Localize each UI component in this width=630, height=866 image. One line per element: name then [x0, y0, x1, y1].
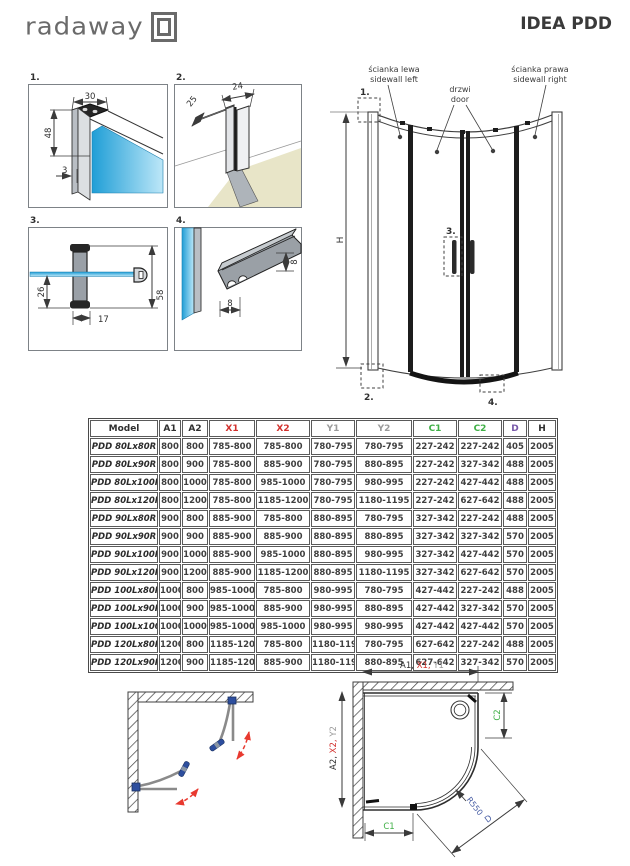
- dim-c1-label: C1: [383, 822, 394, 832]
- value-cell: 885-900: [256, 654, 310, 671]
- value-cell: 980-995: [311, 618, 355, 635]
- value-cell: 427-442: [458, 474, 502, 491]
- value-cell: 785-800: [209, 438, 255, 455]
- value-cell: 1200: [182, 564, 208, 581]
- dim-c2: C2: [485, 693, 512, 738]
- wall-top: [353, 682, 513, 690]
- logo-text: radaway: [25, 15, 144, 39]
- value-cell: 488: [503, 582, 527, 599]
- column-header: H: [528, 420, 556, 437]
- detail-3-drawing: 3. 26 17 58: [28, 213, 168, 351]
- table-row: PDD 100Lx90R1000900985-1000885-900980-99…: [90, 600, 556, 617]
- value-cell: 627-642: [458, 492, 502, 509]
- model-cell: PDD 120Lx80R: [90, 636, 158, 653]
- value-cell: 1000: [159, 618, 181, 635]
- marker-3: 3.: [446, 227, 456, 237]
- value-cell: 1200: [159, 654, 181, 671]
- value-cell: 880-895: [311, 510, 355, 527]
- value-cell: 405: [503, 438, 527, 455]
- glass-panel: [30, 272, 134, 277]
- value-cell: 900: [159, 528, 181, 545]
- diagonal-label: D: [483, 813, 495, 825]
- marker-1: 1.: [360, 88, 370, 98]
- dim-24: 24: [232, 81, 244, 93]
- door-handle-right: [470, 240, 475, 274]
- door-bottom-left: [132, 761, 198, 804]
- model-cell: PDD 100Lx80R: [90, 582, 158, 599]
- value-cell: 1200: [182, 492, 208, 509]
- label-sidewall-right-en: sidewall right: [513, 75, 567, 84]
- value-cell: 2005: [528, 510, 556, 527]
- table-header-row: ModelA1A2X1X2Y1Y2C1C2DH: [90, 420, 556, 437]
- value-cell: 980-995: [311, 600, 355, 617]
- value-cell: 780-795: [356, 510, 412, 527]
- catalog-page: radaway IDEA PDD 1. 30 48 3: [0, 0, 630, 866]
- value-cell: 985-1000: [209, 618, 255, 635]
- value-cell: 570: [503, 600, 527, 617]
- value-cell: 1000: [182, 474, 208, 491]
- radaway-logo: radaway: [25, 12, 177, 42]
- value-cell: 785-800: [256, 510, 310, 527]
- height-dimension: H: [336, 114, 362, 368]
- model-cell: PDD 100Lx90R: [90, 600, 158, 617]
- pivot-block: [132, 783, 140, 791]
- column-header: Y1: [311, 420, 355, 437]
- dim-48: 48: [44, 128, 54, 139]
- value-cell: 900: [159, 564, 181, 581]
- column-header: C1: [413, 420, 457, 437]
- value-cell: 885-900: [209, 564, 255, 581]
- value-cell: 327-342: [413, 546, 457, 563]
- detail-1-drawing: 1. 30 48 3: [28, 70, 168, 208]
- value-cell: 780-795: [356, 438, 412, 455]
- value-cell: 1000: [182, 546, 208, 563]
- pivot-block: [228, 697, 236, 704]
- value-cell: 2005: [528, 564, 556, 581]
- value-cell: 1000: [182, 618, 208, 635]
- value-cell: 780-795: [311, 474, 355, 491]
- value-cell: 227-242: [458, 636, 502, 653]
- detail-4-drawing: 4. 8 8: [174, 213, 302, 351]
- model-cell: PDD 90Lx100R: [90, 546, 158, 563]
- value-cell: 985-1000: [256, 546, 310, 563]
- enclosure-front: [330, 112, 562, 382]
- value-cell: 2005: [528, 636, 556, 653]
- value-cell: 885-900: [256, 456, 310, 473]
- detail-1-label: 1.: [30, 73, 40, 83]
- value-cell: 785-800: [256, 438, 310, 455]
- table-row: PDD 90Lx90R900900885-900885-900880-89588…: [90, 528, 556, 545]
- value-cell: 227-242: [413, 438, 457, 455]
- value-cell: 2005: [528, 618, 556, 635]
- value-cell: 327-342: [413, 528, 457, 545]
- value-cell: 427-442: [413, 600, 457, 617]
- logo-square-icon: [151, 12, 177, 42]
- label-door-pl: drzwi: [449, 85, 470, 94]
- value-cell: 570: [503, 546, 527, 563]
- value-cell: 1000: [159, 582, 181, 599]
- value-cell: 2005: [528, 546, 556, 563]
- value-cell: 900: [182, 600, 208, 617]
- value-cell: 327-342: [458, 600, 502, 617]
- value-cell: 1185-1200: [256, 492, 310, 509]
- value-cell: 785-800: [209, 492, 255, 509]
- door-handle-left: [452, 240, 457, 274]
- label-door-en: door: [451, 95, 470, 104]
- detail-2-label: 2.: [176, 73, 186, 83]
- value-cell: 327-342: [413, 510, 457, 527]
- value-cell: 1200: [159, 636, 181, 653]
- value-cell: 1180-1195: [356, 492, 412, 509]
- value-cell: 227-242: [413, 456, 457, 473]
- table-row: PDD 80Lx100R8001000785-800985-1000780-79…: [90, 474, 556, 491]
- value-cell: 885-900: [209, 546, 255, 563]
- value-cell: 800: [159, 456, 181, 473]
- value-cell: 980-995: [356, 618, 412, 635]
- model-cell: PDD 80Lx90R: [90, 456, 158, 473]
- value-cell: 900: [182, 456, 208, 473]
- dim-top-y1: Y1: [432, 661, 444, 671]
- value-cell: 800: [159, 474, 181, 491]
- value-cell: 488: [503, 636, 527, 653]
- value-cell: 785-800: [209, 456, 255, 473]
- value-cell: 327-342: [413, 564, 457, 581]
- value-cell: 800: [182, 510, 208, 527]
- value-cell: 2005: [528, 600, 556, 617]
- dim-30: 30: [85, 92, 96, 102]
- wall-left: [353, 682, 363, 838]
- value-cell: 885-900: [256, 600, 310, 617]
- value-cell: 227-242: [413, 474, 457, 491]
- value-cell: 985-1000: [256, 618, 310, 635]
- dim-radius: R550: [456, 790, 485, 817]
- value-cell: 427-442: [458, 546, 502, 563]
- detail-markers: 1. 2. 3. 4.: [358, 88, 504, 408]
- page-title: IDEA PDD: [520, 14, 612, 34]
- value-cell: 1185-1200: [209, 636, 255, 653]
- value-cell: 785-800: [256, 582, 310, 599]
- value-cell: 570: [503, 528, 527, 545]
- label-sidewall-left-en: sidewall left: [370, 75, 418, 84]
- value-cell: 780-795: [311, 492, 355, 509]
- marker-4: 4.: [488, 398, 498, 408]
- dim-left-x2: X2,: [329, 737, 339, 754]
- value-cell: 2005: [528, 582, 556, 599]
- front-view-drawing: ścianka lewa sidewall left drzwi door śc…: [330, 58, 630, 418]
- dim-c2-label: C2: [493, 709, 503, 720]
- dim-58: 58: [156, 290, 166, 301]
- value-cell: 980-995: [356, 546, 412, 563]
- label-sidewall-left-pl: ścianka lewa: [368, 64, 419, 74]
- value-cell: 885-900: [209, 510, 255, 527]
- door-top-right: [209, 697, 249, 759]
- value-cell: 885-900: [256, 528, 310, 545]
- value-cell: 327-342: [458, 456, 502, 473]
- value-cell: 800: [159, 438, 181, 455]
- dim-c1: C1: [365, 813, 413, 841]
- column-header: Model: [90, 420, 158, 437]
- dim-left-a2: A2,: [329, 753, 339, 770]
- value-cell: 1000: [159, 600, 181, 617]
- value-cell: 900: [159, 546, 181, 563]
- value-cell: 900: [159, 510, 181, 527]
- column-header: Y2: [356, 420, 412, 437]
- value-cell: 488: [503, 474, 527, 491]
- model-cell: PDD 120Lx90R: [90, 654, 158, 671]
- value-cell: 880-895: [356, 600, 412, 617]
- detail-4-label: 4.: [176, 216, 186, 226]
- value-cell: 785-800: [209, 474, 255, 491]
- value-cell: 227-242: [458, 438, 502, 455]
- model-cell: PDD 80Lx120R: [90, 492, 158, 509]
- value-cell: 800: [159, 492, 181, 509]
- model-cell: PDD 90Lx90R: [90, 528, 158, 545]
- value-cell: 227-242: [413, 492, 457, 509]
- dim-top-x1: X1,: [417, 661, 434, 671]
- table-row: PDD 90Lx120R9001200885-9001185-1200880-8…: [90, 564, 556, 581]
- dimensions-table: ModelA1A2X1X2Y1Y2C1C2DHPDD 80Lx80R800800…: [88, 418, 558, 673]
- detail-3-label: 3.: [30, 216, 40, 226]
- value-cell: 627-642: [458, 564, 502, 581]
- value-cell: 800: [182, 438, 208, 455]
- column-header: X1: [209, 420, 255, 437]
- wall-left: [128, 692, 138, 812]
- table-row: PDD 80Lx120R8001200785-8001185-1200780-7…: [90, 492, 556, 509]
- opening-arrow: [176, 789, 198, 804]
- value-cell: 800: [182, 582, 208, 599]
- value-cell: 1185-1200: [209, 654, 255, 671]
- value-cell: 488: [503, 492, 527, 509]
- value-cell: 427-442: [413, 618, 457, 635]
- drain: [451, 701, 469, 719]
- column-header: C2: [458, 420, 502, 437]
- handle: [178, 761, 190, 778]
- value-cell: 900: [182, 654, 208, 671]
- table-row: PDD 100Lx100R10001000985-1000985-1000980…: [90, 618, 556, 635]
- model-cell: PDD 90Lx80R: [90, 510, 158, 527]
- column-header: X2: [256, 420, 310, 437]
- table-row: PDD 90Lx100R9001000885-900985-1000880-89…: [90, 546, 556, 563]
- value-cell: 2005: [528, 438, 556, 455]
- radius-label: R550: [465, 795, 485, 817]
- value-cell: 780-795: [311, 438, 355, 455]
- dim-17: 17: [98, 315, 109, 325]
- value-cell: 880-895: [356, 456, 412, 473]
- front-labels: ścianka lewa sidewall left drzwi door śc…: [368, 64, 568, 104]
- value-cell: 1180-1195: [356, 564, 412, 581]
- value-cell: 880-895: [311, 546, 355, 563]
- handle: [209, 738, 225, 751]
- value-cell: 985-1000: [256, 474, 310, 491]
- model-cell: PDD 90Lx120R: [90, 564, 158, 581]
- value-cell: 2005: [528, 456, 556, 473]
- model-cell: PDD 80Lx100R: [90, 474, 158, 491]
- dim-left-y2: Y2: [329, 726, 339, 738]
- column-header: A1: [159, 420, 181, 437]
- model-cell: PDD 80Lx80R: [90, 438, 158, 455]
- label-sidewall-right-pl: ścianka prawa: [511, 64, 569, 74]
- door-opening-schematic: [98, 670, 288, 865]
- value-cell: 880-895: [311, 564, 355, 581]
- value-cell: 900: [182, 528, 208, 545]
- value-cell: 785-800: [256, 636, 310, 653]
- value-cell: 488: [503, 456, 527, 473]
- value-cell: 780-795: [311, 456, 355, 473]
- table-row: PDD 100Lx80R1000800985-1000785-800980-99…: [90, 582, 556, 599]
- value-cell: 1185-1200: [256, 564, 310, 581]
- glass-panel: [182, 228, 194, 320]
- value-cell: 780-795: [356, 582, 412, 599]
- table-row: PDD 120Lx80R12008001185-1200785-8001180-…: [90, 636, 556, 653]
- dim-top-a1: A1,: [400, 661, 417, 671]
- table-row: PDD 90Lx80R900800885-900785-800880-89578…: [90, 510, 556, 527]
- dim-top-label: A1, X1, Y1: [400, 661, 444, 671]
- opening-arrow: [237, 732, 249, 759]
- value-cell: 427-442: [413, 582, 457, 599]
- value-cell: 570: [503, 564, 527, 581]
- value-cell: 780-795: [356, 636, 412, 653]
- column-header: D: [503, 420, 527, 437]
- value-cell: 985-1000: [209, 582, 255, 599]
- plan-view-drawing: A1, X1, Y1 A2, X2, Y2: [318, 653, 630, 866]
- value-cell: 570: [503, 618, 527, 635]
- value-cell: 227-242: [458, 510, 502, 527]
- value-cell: 227-242: [458, 582, 502, 599]
- value-cell: 985-1000: [209, 600, 255, 617]
- value-cell: 1180-1195: [311, 636, 355, 653]
- value-cell: 800: [182, 636, 208, 653]
- value-cell: 885-900: [209, 528, 255, 545]
- column-header: A2: [182, 420, 208, 437]
- dim-H: H: [336, 237, 346, 244]
- dim-8-height: 8: [290, 259, 300, 264]
- model-cell: PDD 100Lx100R: [90, 618, 158, 635]
- table-row: PDD 80Lx90R800900785-800885-900780-79588…: [90, 456, 556, 473]
- value-cell: 980-995: [311, 582, 355, 599]
- value-cell: 980-995: [356, 474, 412, 491]
- value-cell: 427-442: [458, 618, 502, 635]
- marker-2: 2.: [364, 393, 374, 403]
- value-cell: 2005: [528, 528, 556, 545]
- value-cell: 2005: [528, 492, 556, 509]
- value-cell: 880-895: [311, 528, 355, 545]
- dim-left-label: A2, X2, Y2: [329, 726, 339, 770]
- value-cell: 488: [503, 510, 527, 527]
- value-cell: 880-895: [356, 528, 412, 545]
- dim-8-width: 8: [227, 299, 232, 309]
- dim-3: 3: [62, 166, 67, 176]
- dimensions-table-wrap: ModelA1A2X1X2Y1Y2C1C2DHPDD 80Lx80R800800…: [88, 418, 558, 673]
- tray-plan: [363, 693, 478, 810]
- table-row: PDD 80Lx80R800800785-800785-800780-79578…: [90, 438, 556, 455]
- detail-2-drawing: 2. 24 25: [174, 70, 302, 208]
- dim-26: 26: [37, 287, 47, 298]
- value-cell: 2005: [528, 474, 556, 491]
- value-cell: 627-642: [413, 636, 457, 653]
- value-cell: 327-342: [458, 528, 502, 545]
